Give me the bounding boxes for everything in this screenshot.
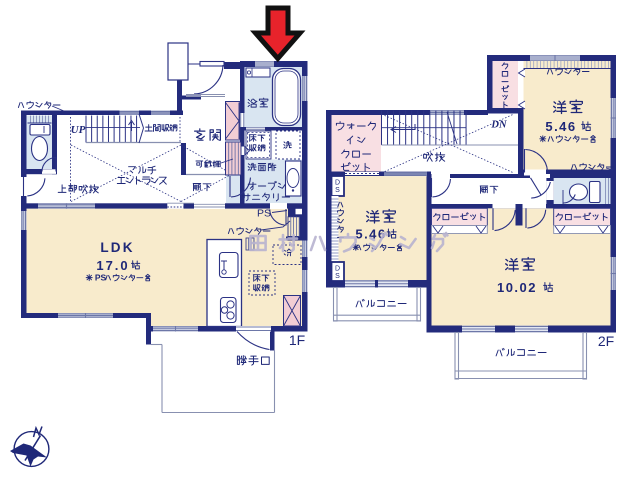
svg-text:1F: 1F (289, 332, 305, 348)
svg-text:5.46: 5.46 (545, 119, 576, 134)
svg-text:PS: PS (95, 273, 107, 283)
svg-text:D: D (335, 265, 340, 272)
svg-text:17.0: 17.0 (96, 258, 129, 273)
svg-text:LDK: LDK (100, 240, 134, 255)
svg-text:PS: PS (257, 208, 271, 220)
svg-text:S: S (335, 187, 340, 194)
svg-text:D: D (335, 179, 340, 186)
svg-text:DN: DN (490, 120, 507, 131)
svg-text:2F: 2F (598, 333, 614, 349)
svg-text:UP: UP (71, 124, 86, 136)
svg-text:S: S (335, 273, 340, 280)
svg-text:10.02: 10.02 (497, 280, 537, 295)
